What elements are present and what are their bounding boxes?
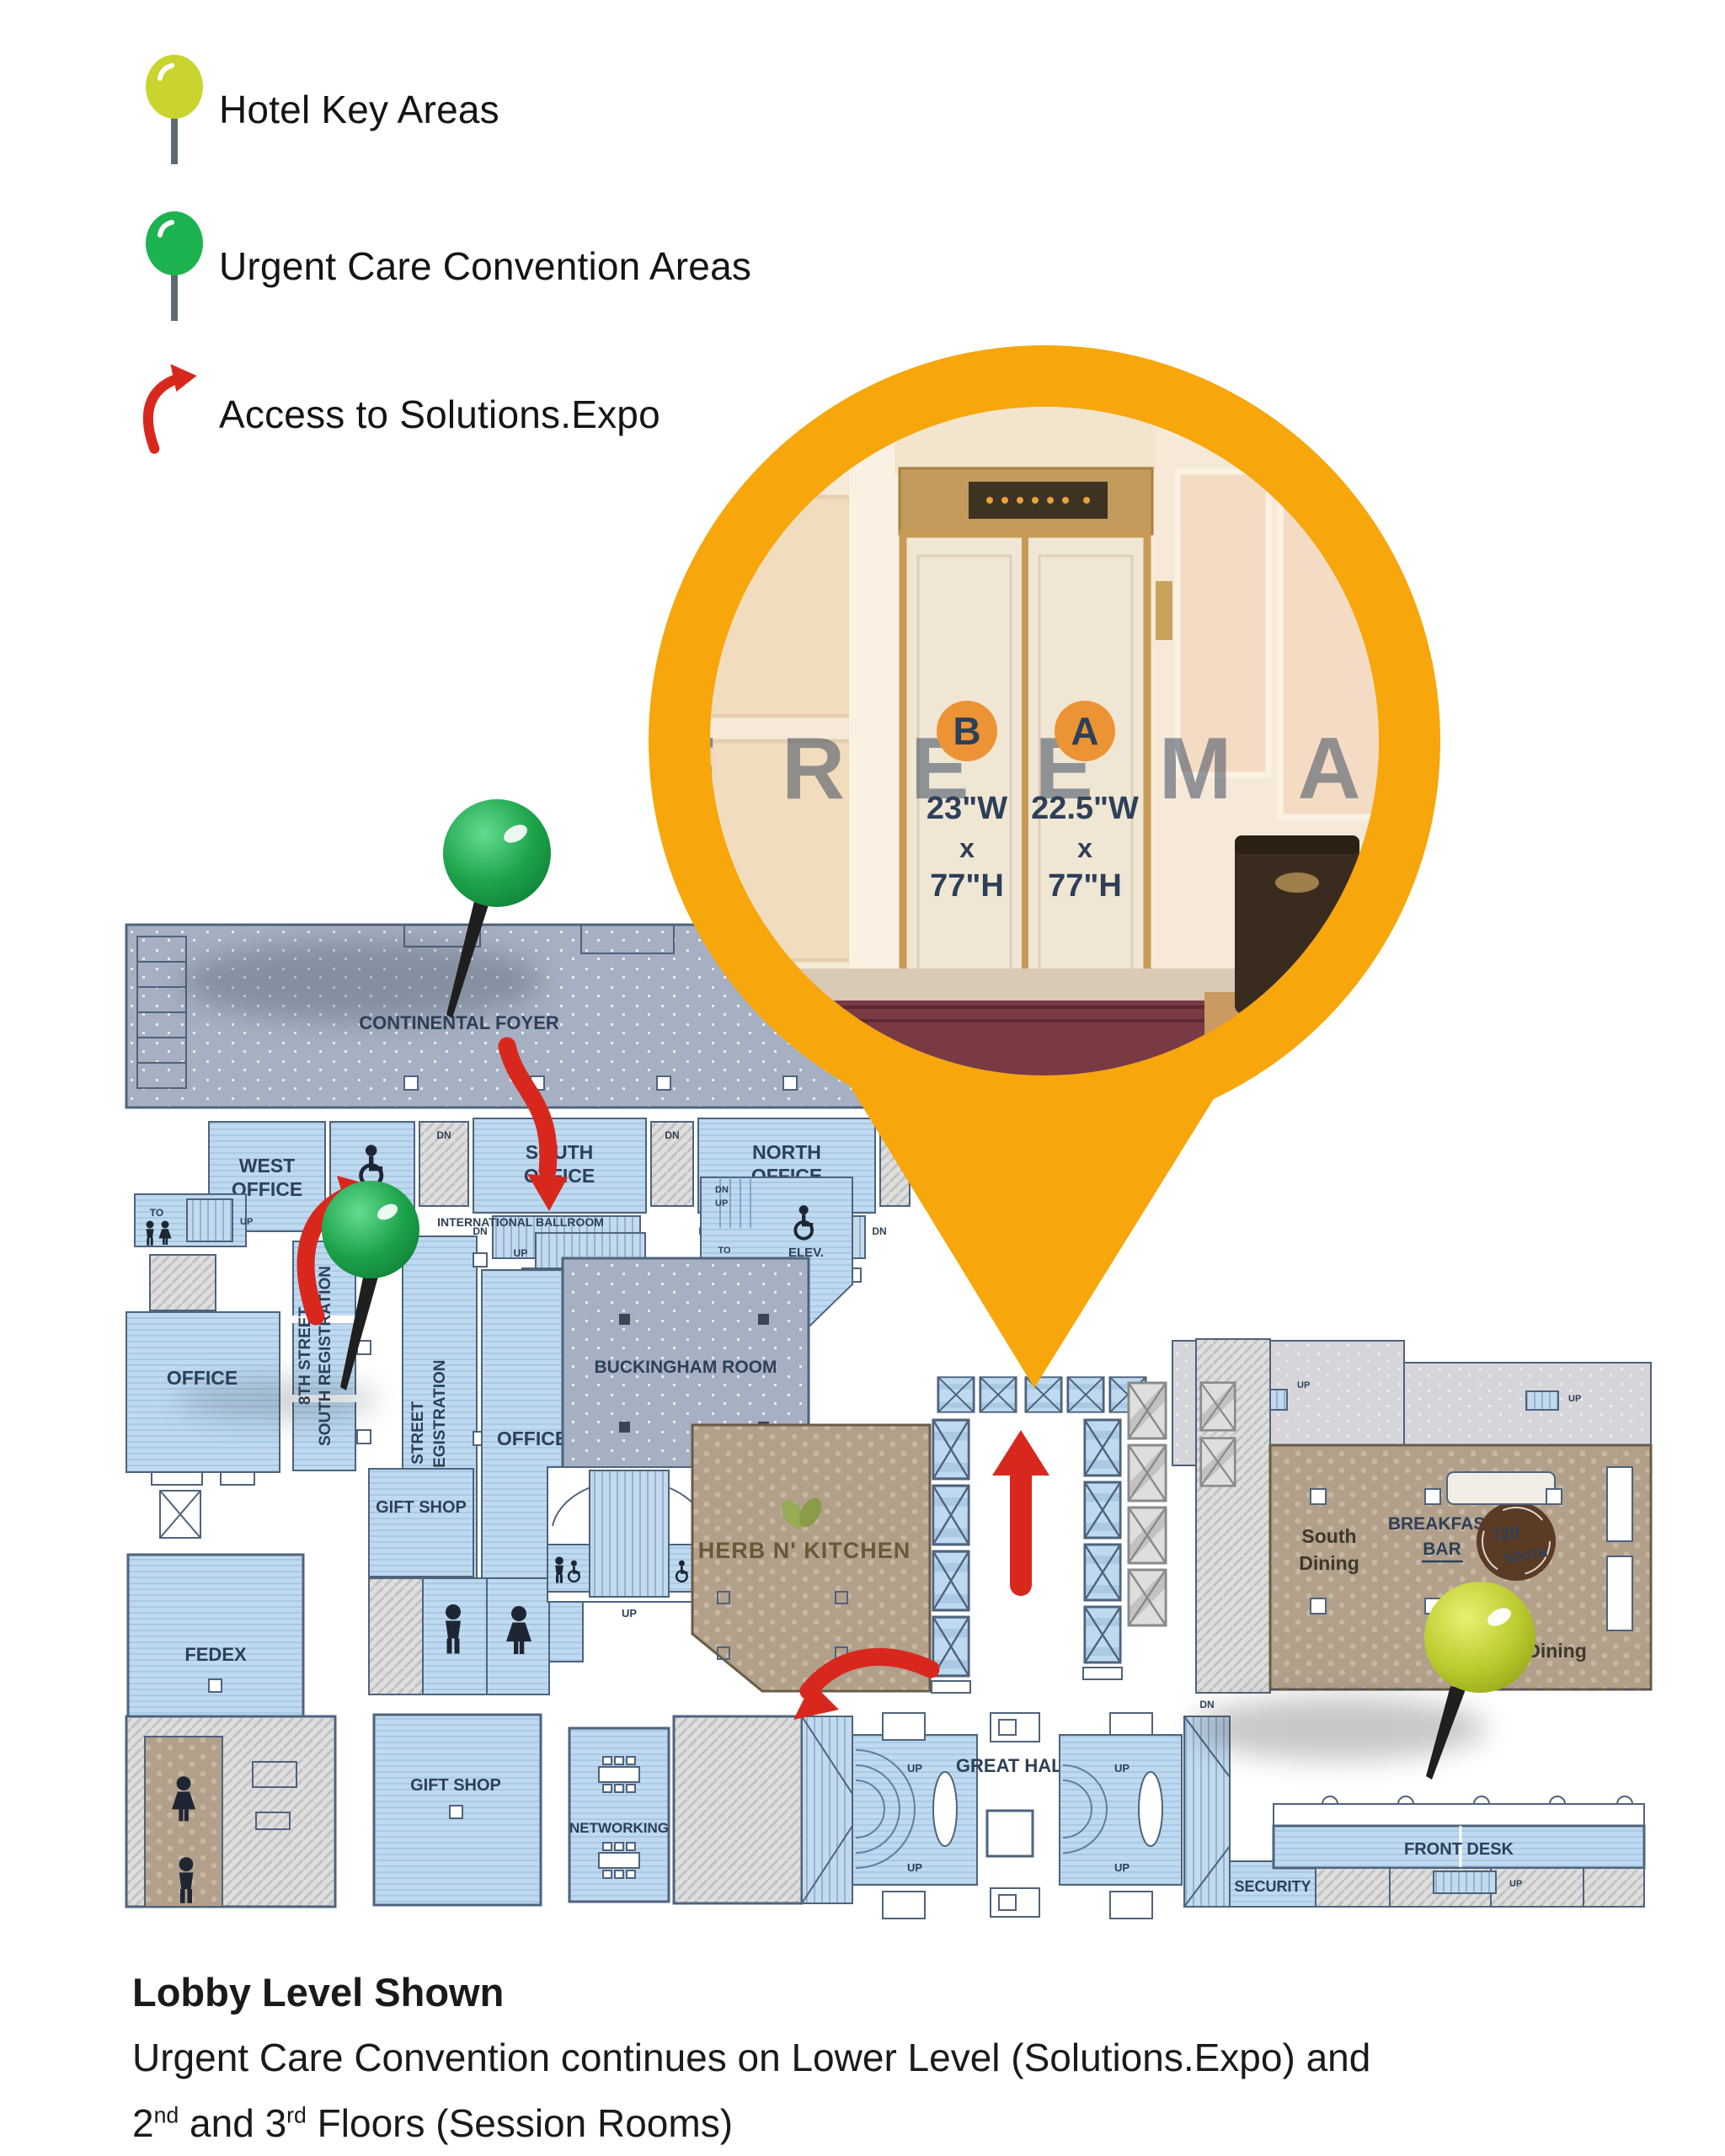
room-south-office: SOUTH OFFICE (473, 1118, 646, 1213)
room-restrooms-center (423, 1578, 549, 1694)
logo-720-south: 720 SOUTH (1477, 1502, 1556, 1581)
floorplan-infographic: Hotel Key Areas Urgent Care Convention A… (0, 0, 1725, 2156)
grand-stair-east: UP UP (1060, 1735, 1182, 1885)
svg-text:DN: DN (1199, 1699, 1214, 1710)
arrowhead (992, 1430, 1049, 1476)
svg-text:WEST: WEST (239, 1155, 295, 1177)
grand-stair-west: UP UP (674, 1716, 977, 1903)
svg-text:UP: UP (1114, 1861, 1130, 1874)
svg-text:x: x (1077, 833, 1092, 863)
room-restrooms-southwest (126, 1716, 335, 1907)
svg-text:UP: UP (907, 1762, 922, 1774)
svg-text:GIFT SHOP: GIFT SHOP (376, 1498, 467, 1517)
rooms-back-office: UP (1316, 1868, 1644, 1907)
room-networking: NETWORKING (569, 1728, 669, 1902)
svg-text:GIFT SHOP: GIFT SHOP (410, 1776, 501, 1795)
door-a-letter: A (1071, 709, 1098, 753)
svg-text:DN: DN (436, 1129, 451, 1141)
svg-text:GREAT HALL: GREAT HALL (956, 1755, 1074, 1776)
label-international-ballroom: INTERNATIONAL BALLROOM (437, 1215, 604, 1229)
col-east-gray (1196, 1339, 1270, 1693)
elevator-bank (932, 1377, 1166, 1693)
shadow (177, 1378, 379, 1422)
table-icon (599, 1843, 639, 1878)
room-restroom-west: TO UP (135, 1194, 253, 1246)
svg-text:77"H: 77"H (1048, 868, 1122, 904)
svg-text:DN: DN (872, 1225, 886, 1237)
service-area (369, 1578, 423, 1694)
svg-text:Dining: Dining (1299, 1552, 1359, 1574)
svg-text:BUCKINGHAM ROOM: BUCKINGHAM ROOM (595, 1358, 777, 1377)
svg-text:77"H: 77"H (930, 868, 1004, 904)
room-gift-shop-lower: GIFT SHOP (374, 1715, 541, 1905)
svg-text:UP: UP (622, 1607, 637, 1620)
svg-text:NORTH: NORTH (752, 1141, 821, 1163)
svg-text:DN: DN (665, 1129, 679, 1141)
lobby-floorplan-map: CONTINENTAL FOYER WEST OFFICE LIFT DN SO… (0, 0, 1725, 2156)
svg-text:HERB N' KITCHEN: HERB N' KITCHEN (698, 1538, 911, 1563)
svg-text:UP: UP (1509, 1879, 1522, 1889)
svg-text:UP: UP (1297, 1380, 1310, 1390)
svg-text:UP: UP (907, 1861, 922, 1874)
svg-text:UP: UP (514, 1247, 528, 1259)
caption: Lobby Level Shown Urgent Care Convention… (132, 1961, 1648, 2156)
caption-line1: Urgent Care Convention continues on Lowe… (132, 2025, 1648, 2090)
svg-text:TO: TO (150, 1207, 163, 1219)
svg-text:UP: UP (240, 1217, 253, 1227)
svg-text:720: 720 (1490, 1524, 1520, 1545)
room-front-desk: FRONT DESK (1274, 1796, 1644, 1868)
svg-text:22.5"W: 22.5"W (1031, 791, 1139, 826)
caption-line2: 2nd and 3rd Floors (Session Rooms) (132, 2090, 1648, 2156)
svg-text:TO: TO (718, 1246, 731, 1256)
utility (150, 1255, 216, 1310)
stairs-arch-up: UP (547, 1467, 711, 1620)
shadow (181, 941, 543, 1022)
svg-text:NETWORKING: NETWORKING (569, 1820, 669, 1836)
svg-text:BAR: BAR (1423, 1540, 1461, 1559)
svg-text:FEDEX: FEDEX (184, 1644, 247, 1665)
door-b-letter: B (953, 709, 980, 753)
svg-text:DN: DN (715, 1185, 729, 1195)
svg-text:OFFICE: OFFICE (497, 1428, 568, 1449)
caption-title: Lobby Level Shown (132, 1961, 1648, 2025)
door-b: B 23"W x 77"H (927, 701, 1007, 904)
svg-text:FRONT DESK: FRONT DESK (1404, 1840, 1514, 1859)
callout-tip (830, 1053, 1242, 1388)
svg-text:South: South (1301, 1525, 1356, 1547)
svg-text:UP: UP (715, 1198, 728, 1209)
svg-text:SOUTH: SOUTH (526, 1141, 594, 1163)
svg-text:x: x (959, 833, 975, 863)
svg-text:SECURITY: SECURITY (1234, 1878, 1311, 1895)
table-icon (599, 1757, 639, 1792)
svg-text:UP: UP (1568, 1394, 1581, 1404)
room-gift-shop-upper: GIFT SHOP (369, 1469, 473, 1577)
svg-text:UP: UP (1114, 1762, 1130, 1774)
svg-text:23"W: 23"W (927, 791, 1007, 826)
svg-text:Dining: Dining (1526, 1640, 1587, 1662)
